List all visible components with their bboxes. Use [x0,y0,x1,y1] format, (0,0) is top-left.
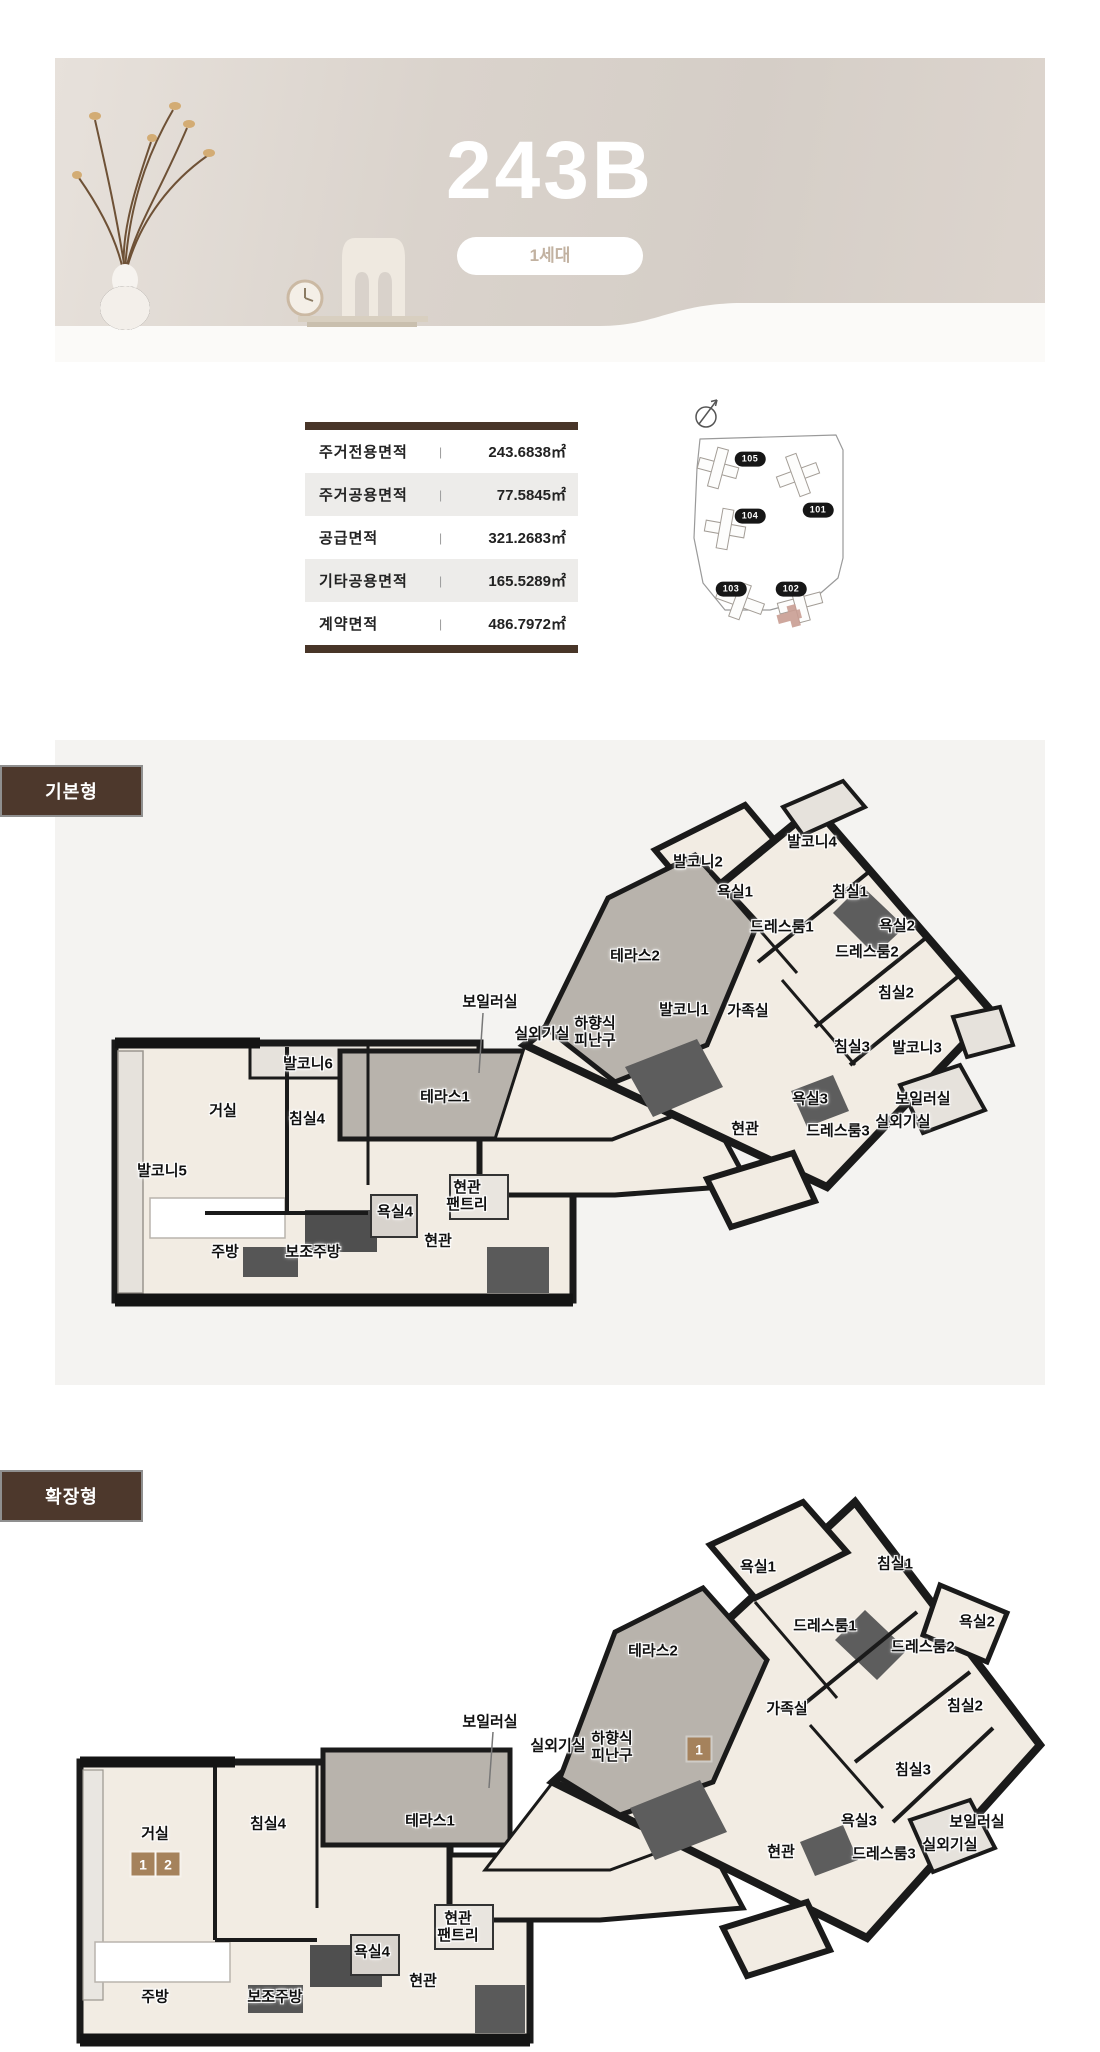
floorplan-basic: 발코니4발코니2욕실1침실1드레스룸1욕실2드레스룸2테라스2침실2보일러실실외… [55,755,1045,1380]
area-row: 주거전용면적|243.6838㎡ [305,430,578,473]
pantry-room [435,1905,493,1949]
building-label-103: 103 [716,582,747,597]
area-value: 77.5845㎡ [448,484,566,505]
area-divider: | [439,445,442,459]
unit-option-badge: 2 [157,1853,180,1876]
floorplan-extended: 욕실1침실1드레스룸1욕실2드레스룸2테라스2가족실침실2보일러실실외기실하향식… [55,1490,1045,2052]
area-divider: | [439,617,442,631]
building-label-104: 104 [735,509,766,524]
area-label: 주거전용면적 [319,441,429,462]
bath4-room [351,1935,399,1975]
building-label-101: 101 [803,503,834,518]
kitchen-island [150,1198,285,1238]
building-label-102: 102 [776,582,807,597]
unit-type-title: 243B [55,130,1045,212]
area-divider: | [439,488,442,502]
area-table-body: 주거전용면적|243.6838㎡주거공용면적|77.5845㎡공급면적|321.… [305,430,578,645]
unit-option-badge: 1 [132,1853,155,1876]
decor-shelf [55,303,1045,362]
area-divider: | [439,574,442,588]
area-row: 계약면적|486.7972㎡ [305,602,578,645]
decor-books [298,316,428,327]
area-value: 486.7972㎡ [448,613,566,634]
unit-option-badge: 1 [688,1738,711,1761]
balcony5-strip [118,1051,143,1293]
decor-sculpture [342,238,405,326]
decor-clock [288,281,322,315]
site-plan-pills: 105101104103102 [655,393,873,641]
area-label: 공급면적 [319,527,429,548]
building-label-105: 105 [735,452,766,467]
area-info-table: 주거전용면적|243.6838㎡주거공용면적|77.5845㎡공급면적|321.… [305,422,578,653]
area-divider: | [439,531,442,545]
tab-extended-type[interactable]: 확장형 [0,1470,143,1522]
tab-basic-type[interactable]: 기본형 [0,765,143,817]
site-plan-map: 105101104103102 [655,393,873,641]
area-label: 주거공용면적 [319,484,429,505]
household-count-badge: 1세대 [457,237,643,275]
bath4-room [371,1195,417,1237]
area-label: 기타공용면적 [319,570,429,591]
table-bottom-rule [305,645,578,653]
area-row: 공급면적|321.2683㎡ [305,516,578,559]
table-top-rule [305,422,578,430]
balcony4-block [783,781,865,835]
entry-block [723,1902,830,1976]
area-value: 165.5289㎡ [448,570,566,591]
hero-banner: 243B 1세대 [55,58,1045,362]
terrace-1 [323,1750,510,1845]
floorplan-basic-drawing [55,755,1045,1380]
area-row: 주거공용면적|77.5845㎡ [305,473,578,516]
decor-vase [100,264,150,330]
area-value: 321.2683㎡ [448,527,566,548]
kitchen-island [95,1942,230,1982]
area-label: 계약면적 [319,613,429,634]
pantry-room [450,1175,508,1219]
area-row: 기타공용면적|165.5289㎡ [305,559,578,602]
area-value: 243.6838㎡ [448,441,566,462]
floorplan-extended-drawing [55,1490,1045,2052]
